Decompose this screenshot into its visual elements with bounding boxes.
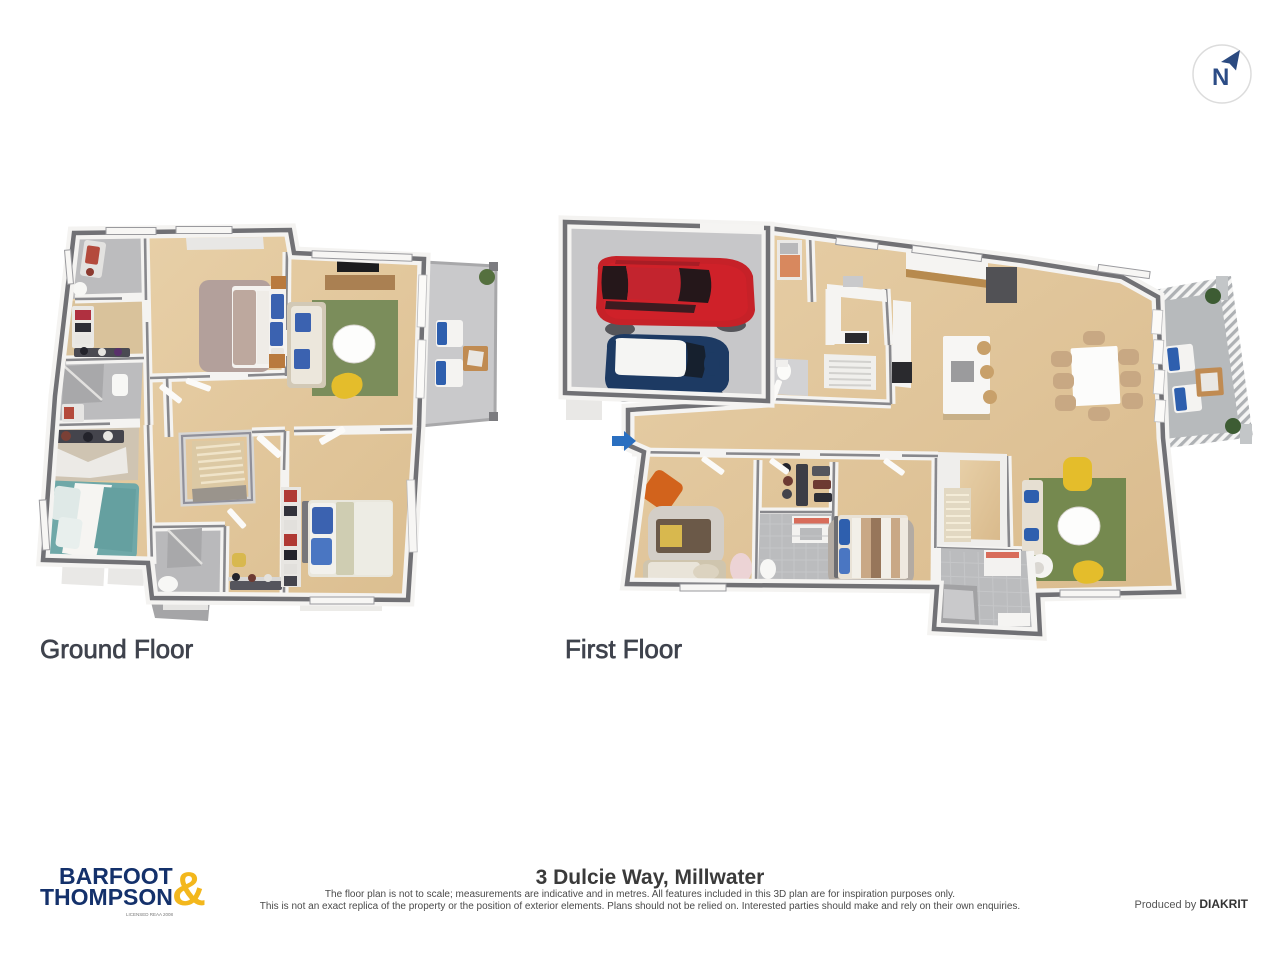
- svg-text:&: &: [172, 862, 206, 915]
- svg-text:Ground Floor: Ground Floor: [40, 634, 194, 664]
- svg-text:3 Dulcie Way, Millwater: 3 Dulcie Way, Millwater: [536, 866, 765, 889]
- svg-text:LICENSED REAA 2008: LICENSED REAA 2008: [126, 912, 174, 917]
- svg-text:Produced by DIAKRIT: Produced by DIAKRIT: [1135, 897, 1249, 911]
- svg-text:The floor plan is not to scale: The floor plan is not to scale; measurem…: [325, 889, 955, 900]
- svg-text:This is not an exact replica o: This is not an exact replica of the prop…: [260, 901, 1020, 912]
- svg-text:N: N: [1212, 64, 1229, 91]
- svg-text:First Floor: First Floor: [565, 634, 682, 664]
- svg-text:THOMPSON: THOMPSON: [40, 884, 173, 910]
